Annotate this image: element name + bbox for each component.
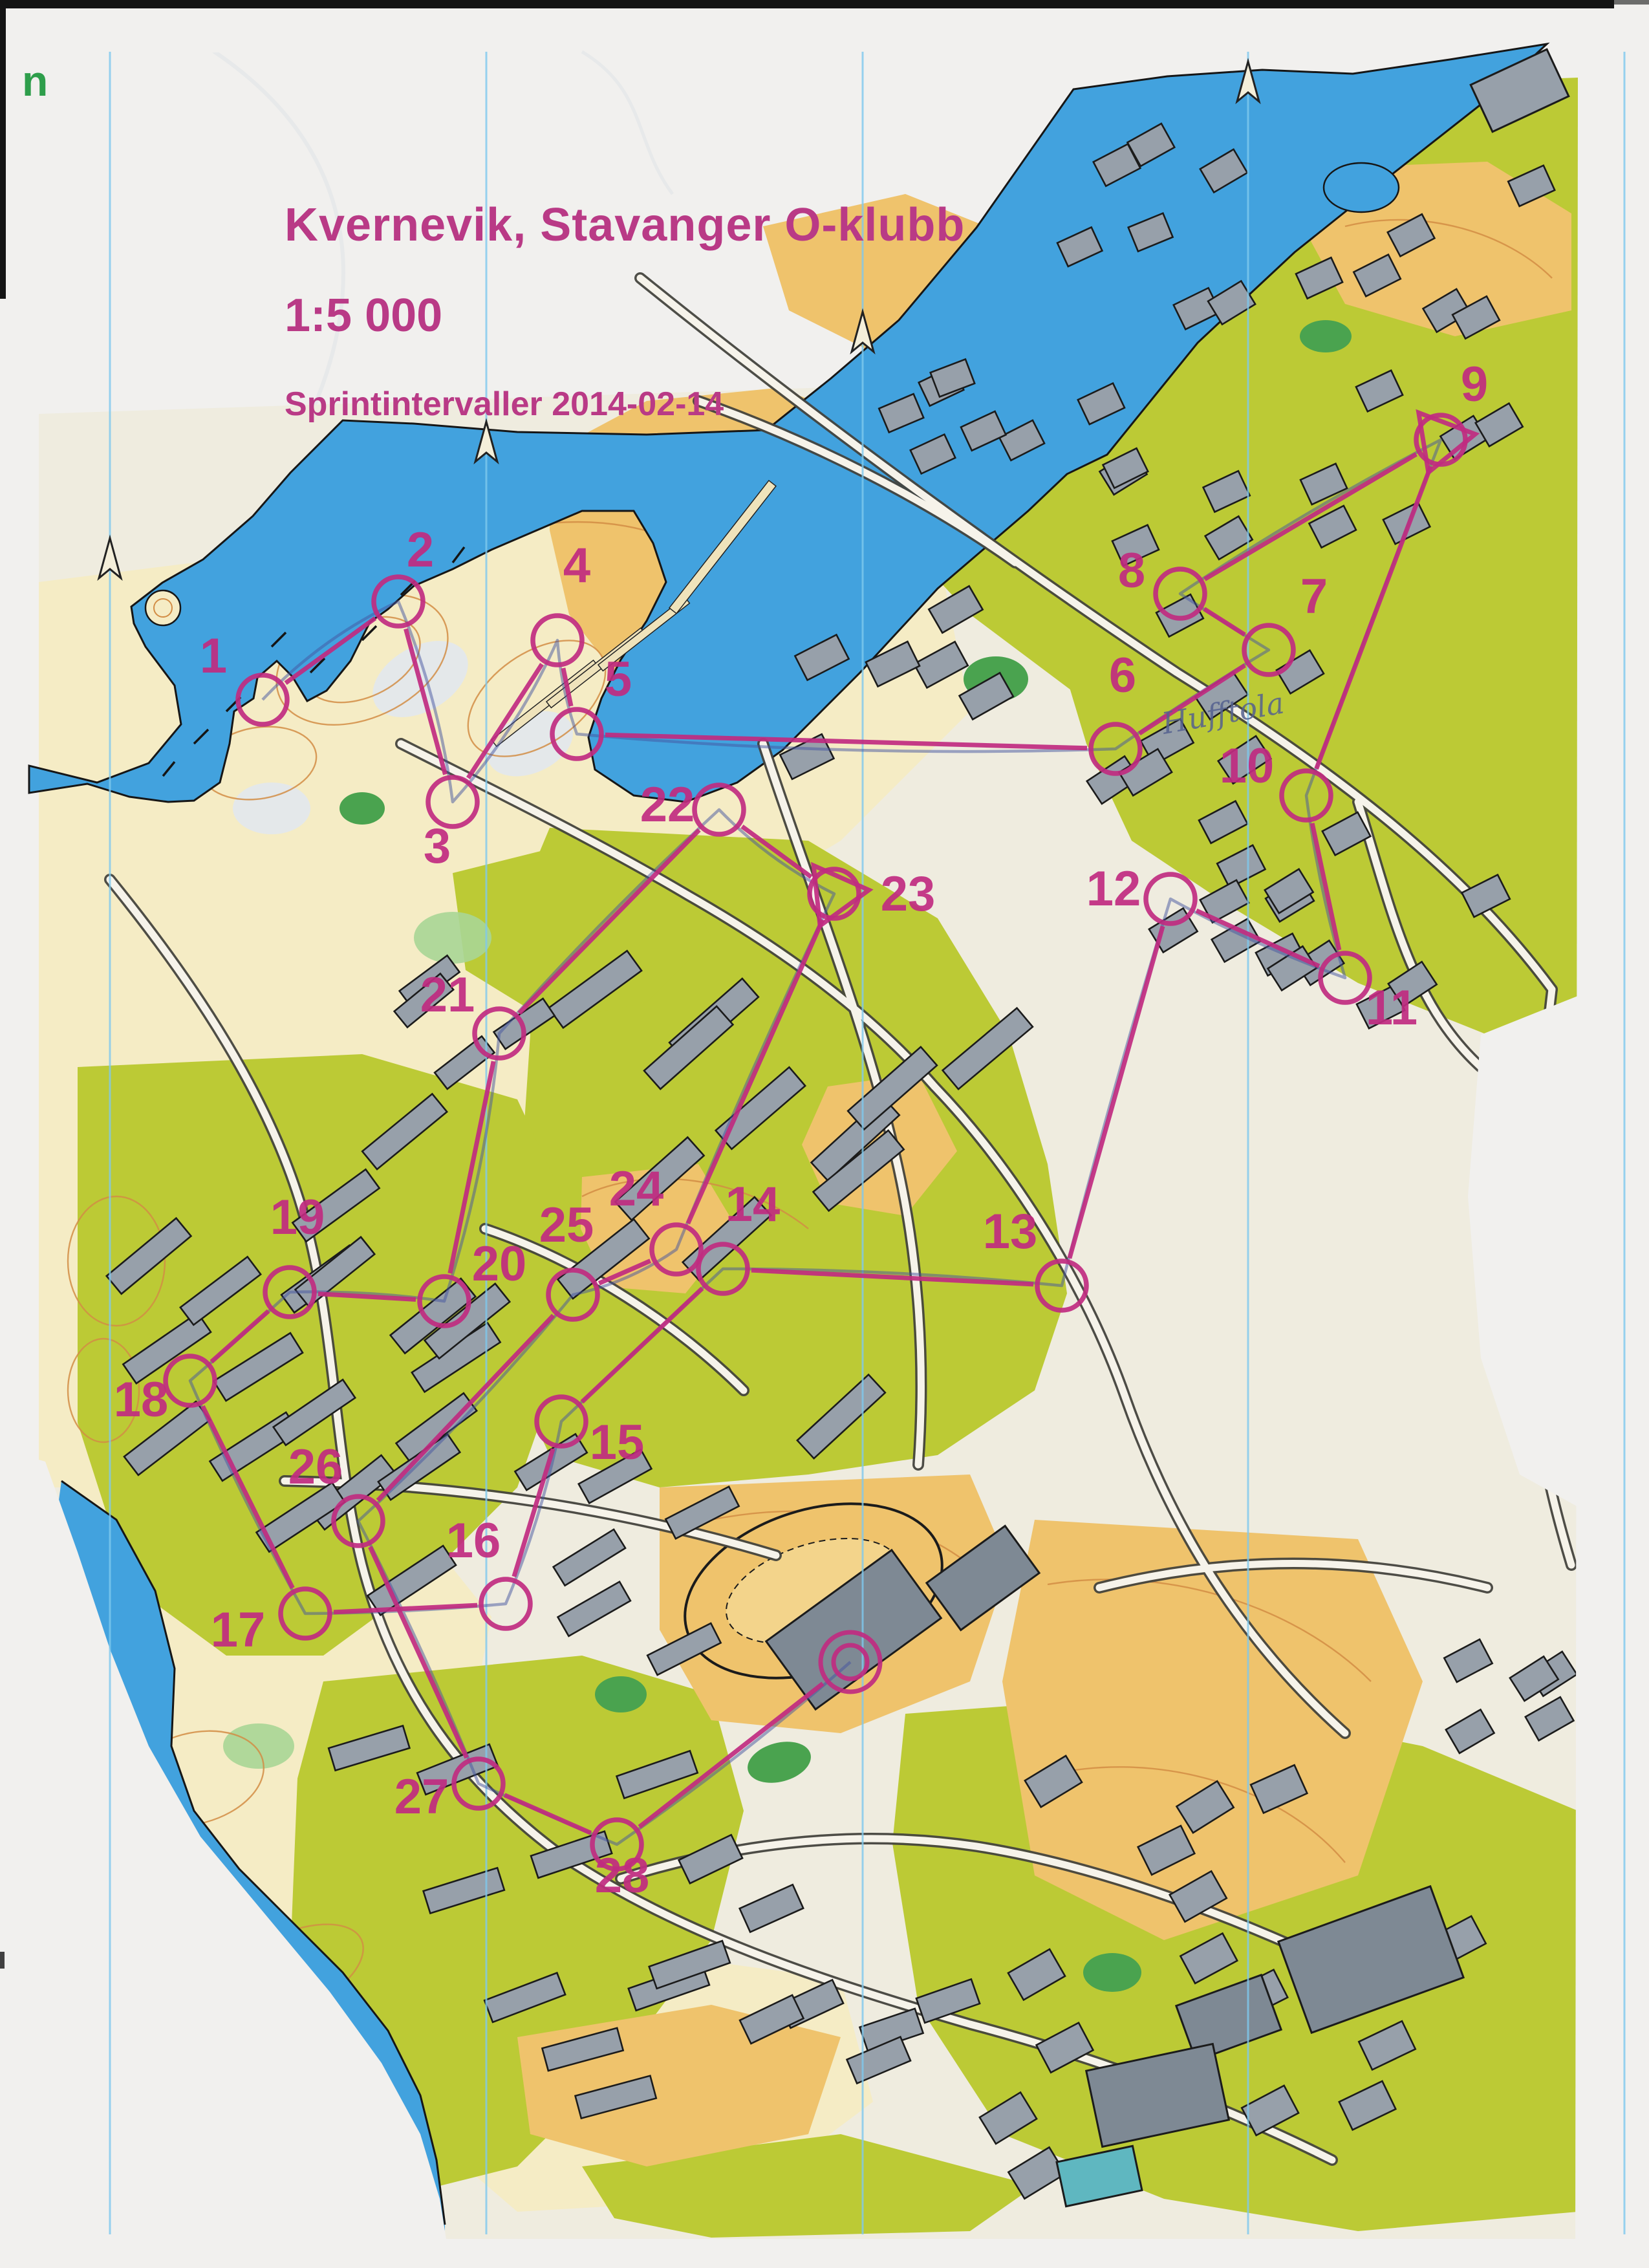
control-number-6: 6 [1109, 648, 1136, 703]
map-subtitle: Sprintintervaller 2014-02-14 [285, 385, 724, 423]
page-title: Kvernevik, Stavanger O-klubb [285, 199, 965, 251]
control-number-25: 25 [539, 1198, 594, 1253]
control-number-11: 11 [1366, 980, 1417, 1035]
island [145, 590, 180, 625]
control-number-16: 16 [446, 1513, 501, 1568]
scanned-orienteering-map-page: 1234567891011121314151617181920212223242… [0, 0, 1649, 2268]
control-number-1: 1 [200, 629, 227, 684]
control-number-26: 26 [288, 1440, 343, 1495]
control-number-4: 4 [563, 538, 590, 593]
control-number-14: 14 [726, 1177, 781, 1232]
map-canvas: 1234567891011121314151617181920212223242… [0, 0, 1649, 2268]
control-number-8: 8 [1118, 543, 1145, 598]
control-number-12: 12 [1086, 861, 1141, 916]
control-number-15: 15 [590, 1415, 645, 1470]
pond [1324, 163, 1399, 212]
control-number-5: 5 [605, 652, 632, 707]
corner-mark: n [22, 57, 48, 105]
control-number-22: 22 [640, 777, 695, 832]
control-number-27: 27 [394, 1769, 449, 1824]
control-number-18: 18 [114, 1372, 169, 1427]
control-number-20: 20 [472, 1237, 527, 1291]
control-number-10: 10 [1220, 739, 1275, 794]
control-number-9: 9 [1461, 357, 1488, 412]
control-number-17: 17 [211, 1603, 266, 1658]
control-number-21: 21 [420, 967, 475, 1022]
control-number-2: 2 [407, 523, 434, 578]
control-number-3: 3 [424, 819, 451, 874]
control-number-7: 7 [1300, 569, 1328, 624]
control-number-19: 19 [270, 1190, 325, 1245]
control-number-23: 23 [881, 867, 936, 922]
control-number-24: 24 [609, 1161, 664, 1216]
map-scale: 1:5 000 [285, 290, 442, 341]
control-number-13: 13 [983, 1204, 1038, 1259]
control-number-28: 28 [595, 1848, 650, 1903]
